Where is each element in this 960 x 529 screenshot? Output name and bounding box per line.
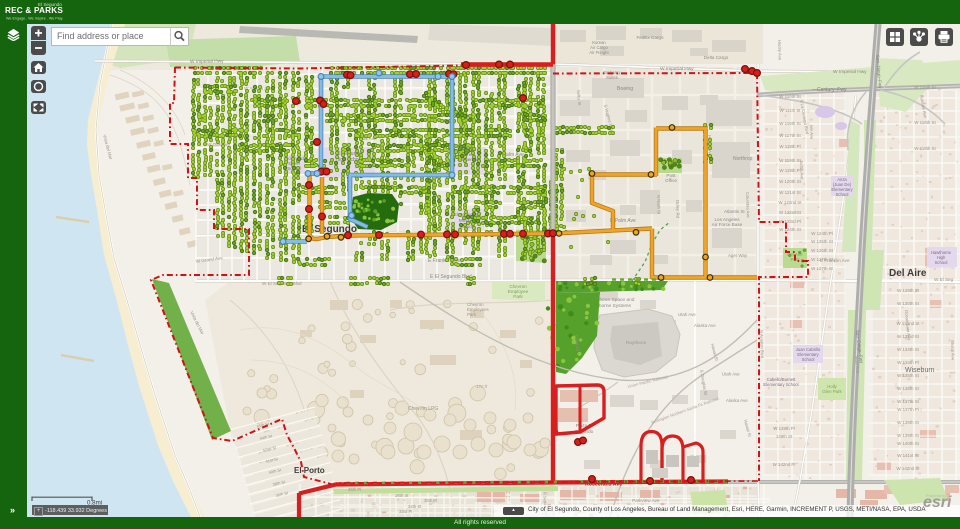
svg-text:E El Segundo Blvd: E El Segundo Blvd: [430, 274, 472, 280]
svg-text:Glen Park: Glen Park: [822, 389, 842, 394]
svg-text:W 138th St: W 138th St: [897, 420, 919, 425]
svg-text:W 141st St: W 141st St: [897, 453, 919, 458]
svg-text:36th Pl: 36th Pl: [348, 487, 361, 492]
svg-text:W Imperial Hwy: W Imperial Hwy: [660, 66, 694, 72]
svg-text:Alaska Ave: Alaska Ave: [694, 323, 716, 328]
svg-text:W 110th St: W 110th St: [779, 94, 801, 99]
svg-text:W 127th St: W 127th St: [811, 257, 833, 262]
svg-text:W 137th Pl: W 137th Pl: [897, 407, 918, 412]
svg-text:N Nash St: N Nash St: [656, 195, 662, 215]
svg-text:W 125th St: W 125th St: [811, 239, 833, 244]
svg-text:W 111th St: W 111th St: [779, 108, 801, 113]
svg-text:Shoup Ave: Shoup Ave: [950, 340, 956, 361]
svg-text:W 119th St: W 119th St: [779, 158, 801, 163]
svg-text:W 136th St: W 136th St: [897, 386, 919, 391]
svg-text:Air Force Base: Air Force Base: [712, 222, 743, 227]
svg-text:139th St: 139th St: [776, 434, 793, 439]
svg-text:W 124th St: W 124th St: [779, 227, 801, 232]
svg-text:W 116th St: W 116th St: [779, 121, 801, 126]
svg-text:—Century–Fwy: —Century–Fwy: [812, 87, 847, 93]
svg-text:W 124th Pl: W 124th Pl: [811, 231, 832, 236]
svg-text:W 126th St: W 126th St: [811, 248, 833, 253]
svg-text:W 130th St: W 130th St: [897, 301, 919, 306]
svg-text:36th St: 36th St: [395, 493, 409, 498]
svg-text:33rd Pl: 33rd Pl: [399, 509, 412, 514]
svg-text:Delta Cargo: Delta Cargo: [704, 55, 729, 60]
svg-text:Elementary School: Elementary School: [763, 382, 798, 387]
svg-text:School: School: [836, 192, 849, 197]
svg-text:Ager Way: Ager Way: [728, 253, 748, 258]
svg-text:W 134th St: W 134th St: [897, 347, 919, 352]
svg-text:172 ft: 172 ft: [476, 384, 488, 389]
svg-text:School: School: [935, 260, 948, 265]
svg-text:Park: Park: [513, 294, 523, 299]
svg-text:W 127th St: W 127th St: [811, 266, 833, 271]
svg-text:35th Pl: 35th Pl: [424, 498, 437, 503]
svg-text:W Imperial Hwy: W Imperial Hwy: [190, 58, 224, 65]
svg-text:Northrop: Northrop: [733, 156, 753, 162]
svg-text:Office: Office: [665, 178, 677, 183]
svg-text:Boeing: Boeing: [617, 86, 633, 92]
svg-text:W Imperial Hwy: W Imperial Hwy: [833, 69, 867, 75]
svg-text:W 139th Pl: W 139th Pl: [773, 426, 794, 431]
svg-text:W 129th St: W 129th St: [897, 288, 919, 293]
svg-text:W 134th Pl: W 134th Pl: [897, 360, 918, 365]
svg-text:Air Freight: Air Freight: [589, 50, 609, 55]
svg-text:W 121st St: W 121st St: [779, 190, 801, 195]
svg-text:W 123rd St: W 123rd St: [779, 210, 802, 215]
svg-text:Duley Rd: Duley Rd: [675, 200, 681, 219]
svg-text:W El Seg: W El Seg: [934, 277, 954, 282]
svg-text:Suites: Suites: [606, 75, 618, 80]
svg-text:W 120th St: W 120th St: [779, 179, 801, 184]
svg-text:W 119th Pl: W 119th Pl: [779, 168, 800, 173]
svg-text:Utah Ave: Utah Ave: [678, 312, 696, 317]
svg-text:W 122nd St: W 122nd St: [779, 200, 803, 205]
svg-text:W 117th St: W 117th St: [779, 133, 801, 138]
svg-text:El Porto: El Porto: [294, 466, 325, 475]
svg-text:Parkview Ave: Parkview Ave: [632, 498, 660, 503]
svg-text:Atlantis St: Atlantis St: [724, 209, 745, 214]
svg-text:W 115th St: W 115th St: [914, 85, 936, 90]
svg-text:W 118th Pl: W 118th Pl: [779, 144, 800, 149]
svg-text:W 118th St: W 118th St: [914, 146, 936, 151]
svg-text:W 142nd Pl: W 142nd Pl: [773, 462, 796, 467]
svg-text:Raytheon: Raytheon: [626, 340, 647, 346]
svg-text:School: School: [802, 357, 815, 362]
svg-text:Utah Ave: Utah Ave: [722, 372, 740, 377]
svg-text:Judah Ave: Judah Ave: [799, 160, 805, 180]
svg-text:W 140th St: W 140th St: [897, 441, 919, 446]
svg-text:Del Aire: Del Aire: [889, 268, 927, 279]
svg-text:FedEx Cargo: FedEx Cargo: [636, 35, 664, 40]
svg-text:Alaska Ave: Alaska Ave: [726, 398, 748, 403]
svg-text:Columbia Ave: Columbia Ave: [745, 192, 751, 219]
svg-text:W 139th St: W 139th St: [897, 433, 919, 438]
svg-text:W 137th St: W 137th St: [897, 399, 919, 404]
svg-text:W 116th St: W 116th St: [914, 120, 936, 125]
svg-text:W 142nd St: W 142nd St: [897, 466, 921, 471]
svg-text:Park: Park: [467, 312, 477, 317]
svg-text:Hindry Ave: Hindry Ave: [777, 40, 783, 61]
svg-text:W 135th St: W 135th St: [897, 373, 919, 378]
